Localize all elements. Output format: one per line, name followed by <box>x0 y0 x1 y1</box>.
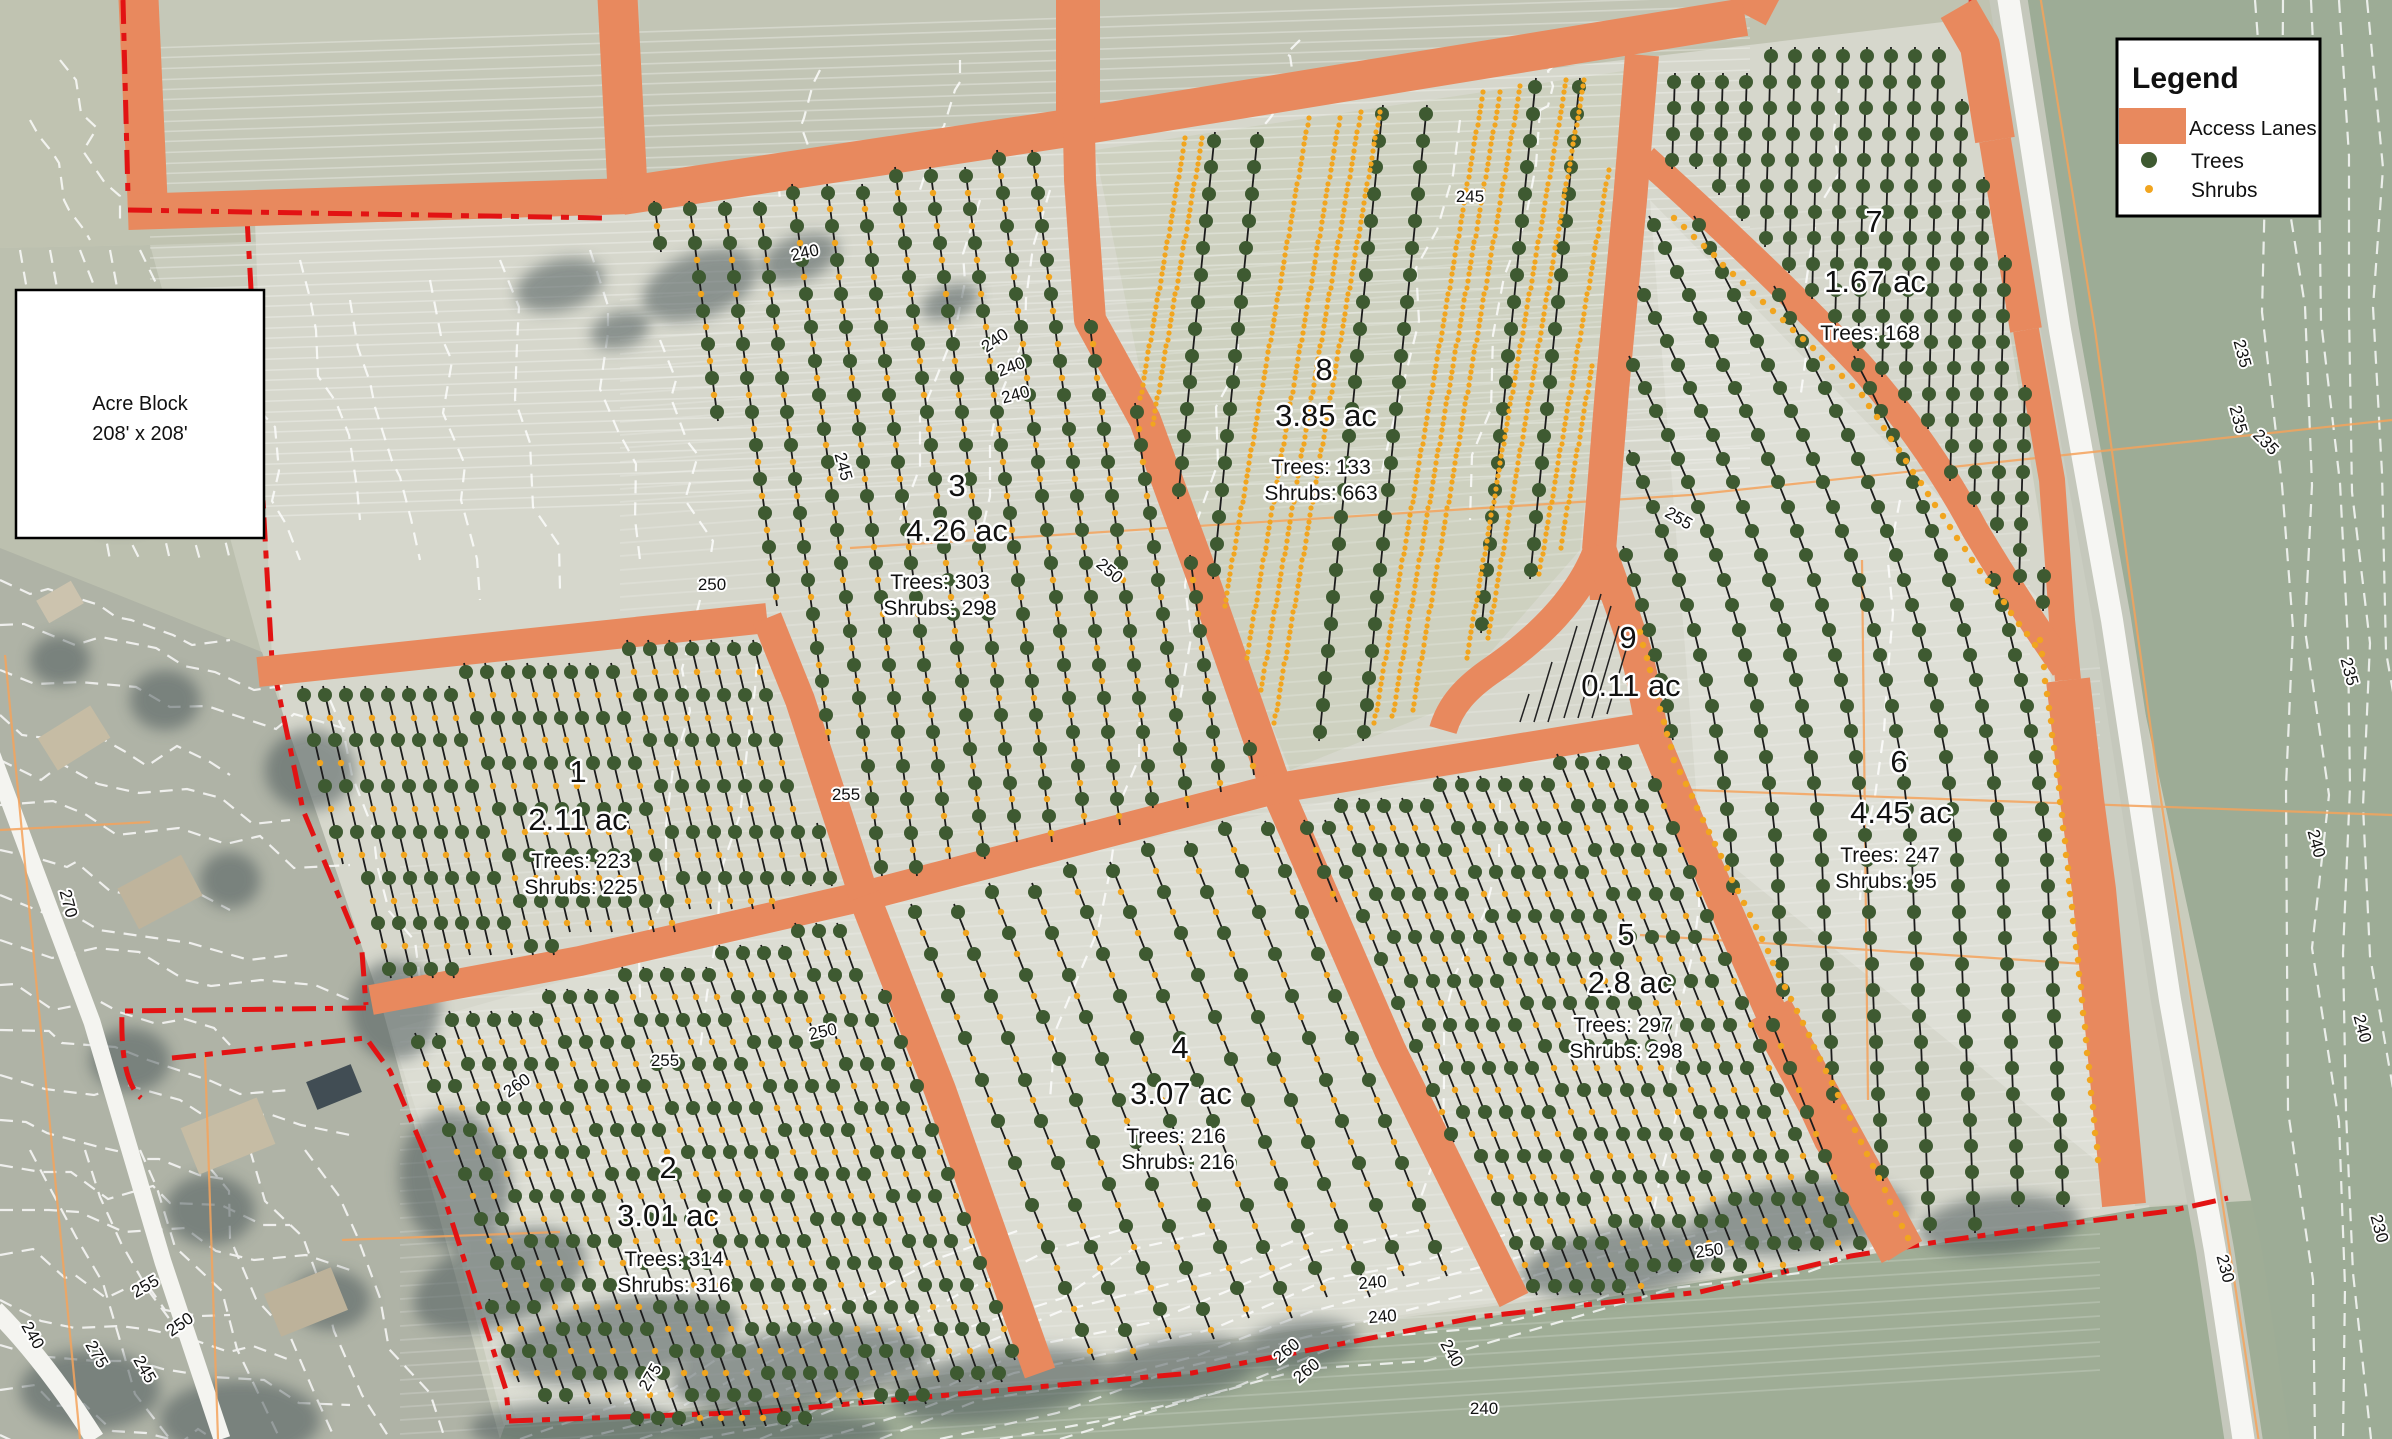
svg-text:2.8 ac: 2.8 ac <box>1588 965 1672 1000</box>
svg-text:Trees: 247: Trees: 247 <box>1840 844 1940 867</box>
svg-text:Acre Block: Acre Block <box>92 393 189 415</box>
svg-text:255: 255 <box>832 785 860 804</box>
svg-text:3: 3 <box>948 468 965 503</box>
svg-text:0.11 ac: 0.11 ac <box>1581 668 1680 703</box>
svg-text:Shrubs: Shrubs <box>2191 179 2258 202</box>
svg-text:240: 240 <box>1358 1272 1388 1293</box>
svg-text:255: 255 <box>651 1051 679 1070</box>
svg-text:250: 250 <box>1694 1239 1725 1262</box>
svg-text:Trees: 314: Trees: 314 <box>624 1248 724 1271</box>
svg-text:4: 4 <box>1171 1030 1188 1065</box>
svg-text:Shrubs: 316: Shrubs: 316 <box>617 1274 730 1297</box>
svg-text:Trees: 133: Trees: 133 <box>1271 456 1371 479</box>
svg-text:Trees: Trees <box>2191 150 2244 173</box>
svg-text:2.11 ac: 2.11 ac <box>528 802 627 837</box>
svg-text:3.07 ac: 3.07 ac <box>1130 1076 1232 1111</box>
svg-text:Shrubs: 663: Shrubs: 663 <box>1264 482 1377 505</box>
svg-text:240: 240 <box>1470 1399 1498 1418</box>
svg-text:Trees: 223: Trees: 223 <box>531 850 631 873</box>
svg-text:Trees: 297: Trees: 297 <box>1573 1014 1673 1037</box>
svg-text:3.01 ac: 3.01 ac <box>617 1198 719 1233</box>
svg-text:Shrubs: 298: Shrubs: 298 <box>883 597 996 620</box>
svg-text:1: 1 <box>569 754 586 789</box>
svg-text:Access Lanes: Access Lanes <box>2189 117 2317 140</box>
svg-text:Shrubs: 298: Shrubs: 298 <box>1569 1040 1682 1063</box>
svg-text:8: 8 <box>1315 352 1332 387</box>
svg-text:3.85 ac: 3.85 ac <box>1275 398 1377 433</box>
svg-text:245: 245 <box>1456 187 1484 206</box>
svg-text:4.26 ac: 4.26 ac <box>906 513 1008 548</box>
svg-text:208' x 208': 208' x 208' <box>92 423 188 445</box>
svg-text:9: 9 <box>1619 620 1636 655</box>
svg-text:Legend: Legend <box>2132 62 2239 95</box>
svg-text:6: 6 <box>1890 744 1907 779</box>
svg-text:1.67 ac: 1.67 ac <box>1824 264 1926 299</box>
svg-text:240: 240 <box>1368 1306 1398 1327</box>
svg-text:7: 7 <box>1865 204 1882 239</box>
svg-text:5: 5 <box>1617 917 1634 952</box>
svg-text:Trees: 303: Trees: 303 <box>890 571 990 594</box>
svg-text:4.45 ac: 4.45 ac <box>1850 795 1952 830</box>
svg-text:Shrubs: 216: Shrubs: 216 <box>1121 1151 1234 1174</box>
svg-text:Shrubs: 225: Shrubs: 225 <box>524 876 637 899</box>
svg-text:2: 2 <box>659 1150 676 1185</box>
svg-text:Trees: 168: Trees: 168 <box>1820 322 1920 345</box>
svg-text:Shrubs: 95: Shrubs: 95 <box>1835 870 1937 893</box>
svg-text:Trees: 216: Trees: 216 <box>1126 1125 1226 1148</box>
svg-text:250: 250 <box>698 575 726 594</box>
